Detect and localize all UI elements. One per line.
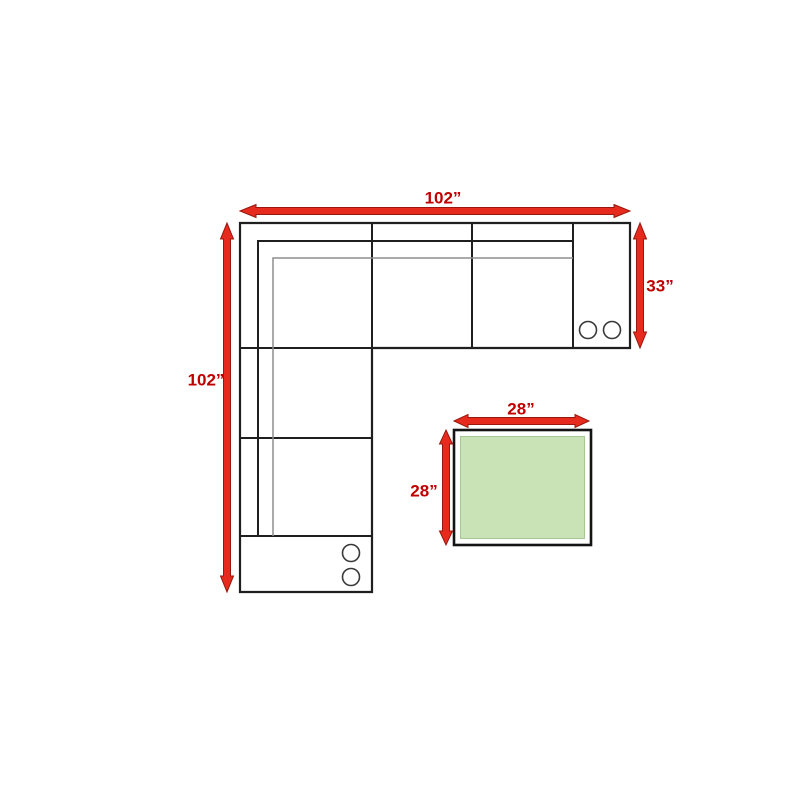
- sofa-dimension-diagram: [0, 0, 800, 800]
- dimension-label-ottoman-depth: 28”: [410, 483, 437, 500]
- dimension-label-ottoman-width: 28”: [507, 401, 534, 418]
- dimension-arrow-section-depth: [634, 223, 647, 348]
- cupholder-icon: [604, 322, 621, 339]
- cupholder-icon: [343, 569, 360, 586]
- diagram-canvas: 102” 102” 33” 28” 28”: [0, 0, 800, 800]
- dimension-label-sofa-depth: 102”: [188, 372, 225, 389]
- dimension-label-section-depth: 33”: [646, 278, 673, 295]
- dimension-arrow-sofa-depth: [221, 223, 234, 592]
- cupholder-icon: [580, 322, 597, 339]
- dimension-label-sofa-width: 102”: [425, 190, 462, 207]
- dimension-arrow-ottoman-depth: [440, 430, 453, 545]
- cupholder-icon: [343, 545, 360, 562]
- ottoman-surface: [461, 437, 585, 539]
